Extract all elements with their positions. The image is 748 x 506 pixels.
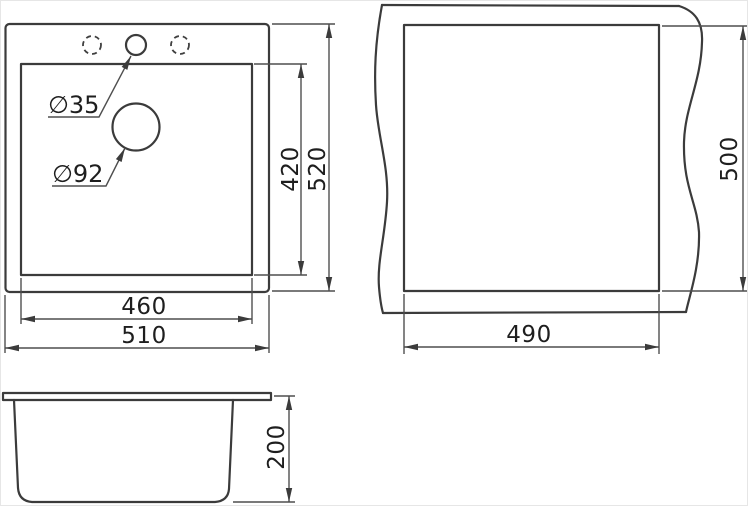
sink-top-view: ∅35 ∅92 420 520 460 510: [5, 24, 335, 353]
outer-depth-dimension-label: 520: [305, 146, 331, 191]
technical-drawing-svg: ∅35 ∅92 420 520 460 510: [1, 1, 748, 506]
sink-bowl-profile: [14, 400, 233, 502]
cutout-width-dimension-label: 490: [506, 322, 551, 348]
outer-width-dimension-label: 510: [121, 323, 166, 349]
faucet-hole-diameter-label: ∅35: [48, 91, 99, 119]
bowl-depth-dimension-label: 200: [264, 424, 290, 469]
cutout-outline: [404, 25, 659, 291]
sink-rim-flange: [3, 393, 271, 400]
sink-side-view: 200: [3, 393, 295, 502]
inner-depth-dimension-label: 420: [278, 146, 304, 191]
countertop-cutout-view: 500 490: [375, 5, 748, 354]
countertop-break-line-left: [375, 5, 387, 313]
cutout-depth-dimension-label: 500: [717, 136, 743, 181]
sink-dimension-drawing: ∅35 ∅92 420 520 460 510: [0, 0, 748, 506]
countertop-break-line-right: [679, 6, 702, 312]
countertop-bottom-edge: [383, 312, 686, 313]
drain-hole-diameter-label: ∅92: [52, 160, 103, 188]
countertop-top-edge: [382, 5, 679, 6]
inner-width-dimension-label: 460: [121, 294, 166, 320]
